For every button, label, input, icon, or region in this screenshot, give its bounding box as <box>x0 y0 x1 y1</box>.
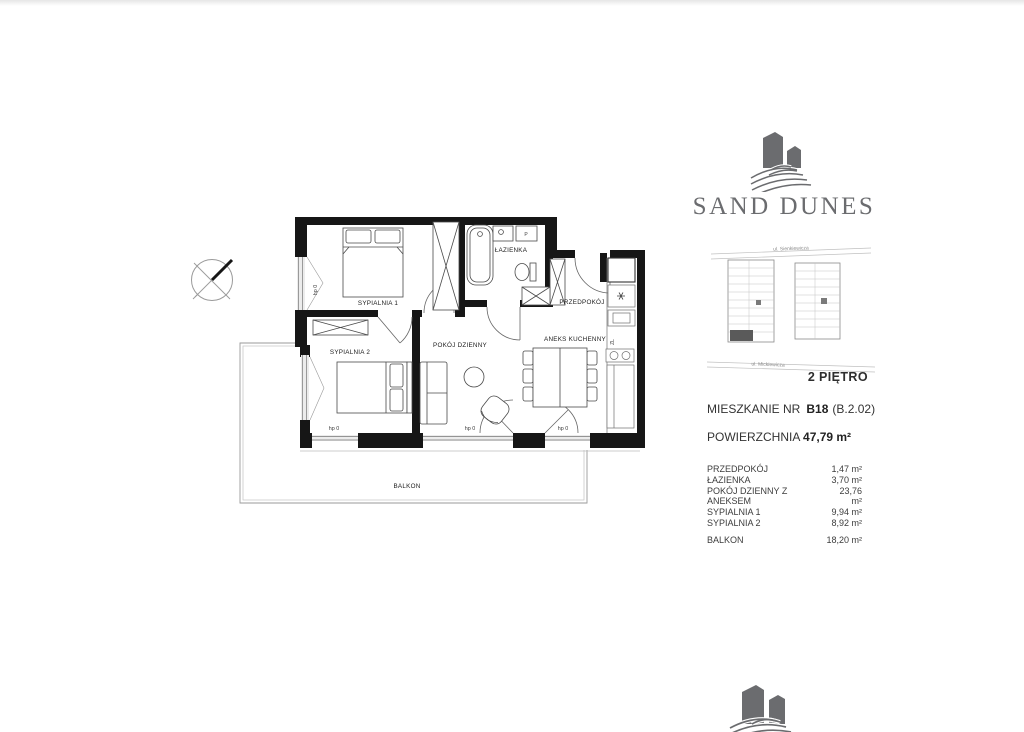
room-name: POKÓJ DZIENNY Z ANEKSEM <box>707 486 828 508</box>
room-name: ŁAZIENKA <box>707 475 751 486</box>
room-area: 9,94 m² <box>831 507 862 518</box>
site-building-left <box>728 260 774 342</box>
floor-plan-sheet: SYPIALNIA 1 SYPIALNIA 2 POKÓJ DZIENNY AN… <box>0 0 1024 732</box>
bedroom1-furniture <box>343 222 459 310</box>
label-sill-height-4: hp 0 <box>313 285 319 296</box>
room-area: 18,20 m² <box>826 535 862 546</box>
room-name: SYPIALNIA 1 <box>707 507 761 518</box>
apartment-number-label: MIESZKANIE NR <box>707 402 800 416</box>
label-bathroom: ŁAZIENKA <box>495 247 528 254</box>
scan-edge-shadow <box>0 0 1024 6</box>
street-bottom-label: ul. Mickiewicza <box>751 361 785 368</box>
living-room-furniture <box>420 362 512 427</box>
room-row-balcony: BALKON 18,20 m² <box>707 535 862 546</box>
label-hall: PRZEDPOKÓJ <box>559 297 604 306</box>
room-name: SYPIALNIA 2 <box>707 518 761 529</box>
room-row-bedroom2: SYPIALNIA 2 8,92 m² <box>707 518 862 529</box>
label-sink-unit: ZL <box>610 339 616 345</box>
brand-name: SAND DUNES <box>688 193 880 221</box>
site-plan: ul. Sienkiewicza ul. Mickiewicza <box>703 238 878 378</box>
apartment-area-label: POWIERZCHNIA <box>707 430 800 444</box>
site-building-right <box>795 263 840 339</box>
label-sill-height-2: hp 0 <box>465 426 476 432</box>
brand-logo-icon-bottom <box>728 684 820 732</box>
label-bedroom2: SYPIALNIA 2 <box>330 349 370 356</box>
room-area: 3,70 m² <box>831 475 862 486</box>
bedroom2-furniture <box>313 320 412 413</box>
dining-furniture <box>523 348 597 407</box>
label-balcony: BALKON <box>393 483 420 490</box>
label-bedroom1: SYPIALNIA 1 <box>358 300 398 307</box>
apartment-area-value: 47,79 m² <box>803 430 851 444</box>
floor-label: 2 PIĘTRO <box>756 370 868 384</box>
room-area: 8,92 m² <box>831 518 862 529</box>
brand-logo-icon <box>745 120 825 192</box>
apartment-code: (B.2.02) <box>832 402 875 416</box>
apartment-area-line: POWIERZCHNIA 47,79 m² <box>707 430 851 444</box>
room-area: 23,76 m² <box>828 486 862 508</box>
room-area-list: PRZEDPOKÓJ 1,47 m² ŁAZIENKA 3,70 m² POKÓ… <box>707 464 862 546</box>
room-area: 1,47 m² <box>831 464 862 475</box>
room-row-hall: PRZEDPOKÓJ 1,47 m² <box>707 464 862 475</box>
apartment-floor-plan: SYPIALNIA 1 SYPIALNIA 2 POKÓJ DZIENNY AN… <box>230 195 660 525</box>
room-name: BALKON <box>707 535 744 546</box>
room-row-bedroom1: SYPIALNIA 1 9,94 m² <box>707 507 862 518</box>
label-living-room: POKÓJ DZIENNY <box>433 340 488 349</box>
apartment-number: B18 <box>806 402 828 416</box>
apartment-number-line: MIESZKANIE NRB18(B.2.02) <box>707 402 875 416</box>
room-row-living: POKÓJ DZIENNY Z ANEKSEM 23,76 m² <box>707 486 862 508</box>
label-sill-height-1: hp 0 <box>329 426 340 432</box>
label-kitchenette: ANEKS KUCHENNY <box>544 336 606 343</box>
label-sill-height-3: hp 0 <box>558 426 569 432</box>
room-name: PRZEDPOKÓJ <box>707 464 768 475</box>
room-row-bathroom: ŁAZIENKA 3,70 m² <box>707 475 862 486</box>
street-top-label: ul. Sienkiewicza <box>773 245 809 252</box>
highlighted-unit <box>730 330 753 341</box>
